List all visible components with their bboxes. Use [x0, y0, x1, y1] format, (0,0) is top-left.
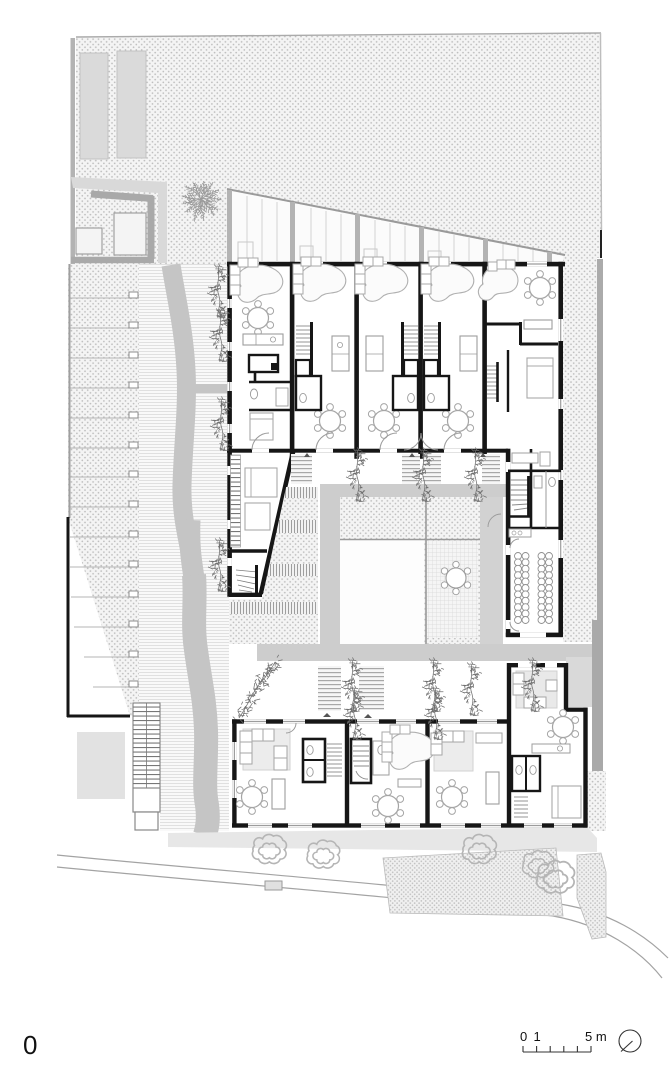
svg-text:1: 1 — [534, 1029, 541, 1044]
svg-text:5 m: 5 m — [585, 1029, 607, 1044]
svg-text:0: 0 — [23, 1030, 37, 1060]
svg-text:0: 0 — [520, 1029, 527, 1044]
